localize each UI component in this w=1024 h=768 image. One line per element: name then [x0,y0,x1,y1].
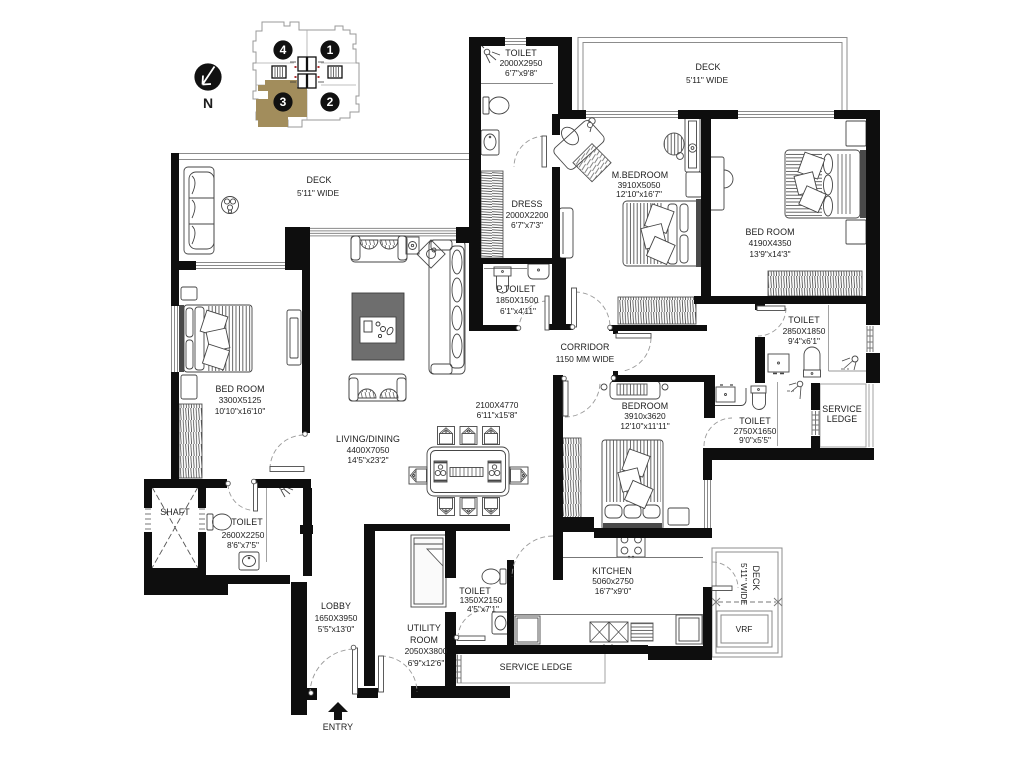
svg-text:1: 1 [327,43,334,57]
svg-text:16'7"x9'0": 16'7"x9'0" [595,586,632,596]
svg-text:M.BEDROOM: M.BEDROOM [612,170,669,180]
svg-text:1850X1500: 1850X1500 [496,295,539,305]
svg-text:14'5"x23'2": 14'5"x23'2" [347,455,388,465]
svg-text:6'9"x12'6": 6'9"x12'6" [408,658,445,668]
svg-text:DRESS: DRESS [511,199,542,209]
svg-text:SHAFT: SHAFT [160,507,190,517]
svg-text:1650X3950: 1650X3950 [315,613,358,623]
svg-text:10'10"x16'10": 10'10"x16'10" [215,406,266,416]
svg-text:5'5"x13'0": 5'5"x13'0" [318,624,355,634]
svg-text:2000X2200: 2000X2200 [506,210,549,220]
svg-text:6'1"x4'11": 6'1"x4'11" [500,306,536,316]
svg-text:DECK: DECK [306,175,331,185]
svg-text:2600X2250: 2600X2250 [222,530,265,540]
svg-text:4400X7050: 4400X7050 [347,445,390,455]
svg-text:6'7"x7'3": 6'7"x7'3" [511,220,543,230]
svg-text:8'6"x7'5": 8'6"x7'5" [227,540,259,550]
svg-text:4'5"x7'1": 4'5"x7'1" [467,604,499,614]
svg-text:3: 3 [280,95,287,109]
svg-text:DECK: DECK [695,62,720,72]
svg-text:6'7"x9'8": 6'7"x9'8" [505,68,537,78]
svg-text:ROOM: ROOM [410,635,438,645]
svg-text:4: 4 [280,43,287,57]
svg-text:LEDGE: LEDGE [827,414,858,424]
svg-text:5060x2750: 5060x2750 [592,576,634,586]
svg-text:ENTRY: ENTRY [323,722,353,732]
svg-text:2000X2950: 2000X2950 [500,58,543,68]
svg-text:2050X3800: 2050X3800 [405,646,448,656]
svg-text:12'10"x16'7": 12'10"x16'7" [616,189,662,199]
svg-text:SERVICE: SERVICE [822,404,862,414]
svg-text:3910x3620: 3910x3620 [624,411,666,421]
svg-text:N: N [203,95,213,111]
svg-text:12'10"x11'11": 12'10"x11'11" [620,421,669,431]
svg-text:UTILITY: UTILITY [407,623,441,633]
svg-text:VRF: VRF [736,624,753,634]
svg-text:6'11"x15'8": 6'11"x15'8" [477,410,518,420]
svg-text:LOBBY: LOBBY [321,601,351,611]
svg-text:4190X4350: 4190X4350 [749,238,792,248]
svg-text:BED ROOM: BED ROOM [745,227,794,237]
svg-text:2850X1850: 2850X1850 [783,326,826,336]
svg-text:5'11" WIDE: 5'11" WIDE [739,563,749,606]
svg-text:2100X4770: 2100X4770 [476,400,519,410]
svg-text:TOILET: TOILET [788,315,820,325]
svg-text:TOILET: TOILET [231,517,263,527]
svg-text:1150 MM WIDE: 1150 MM WIDE [556,354,615,364]
svg-text:5'11" WIDE: 5'11" WIDE [686,75,729,85]
svg-text:5'11" WIDE: 5'11" WIDE [297,188,340,198]
svg-text:2: 2 [327,95,334,109]
svg-text:SERVICE LEDGE: SERVICE LEDGE [500,662,573,672]
svg-text:9'4"x6'1": 9'4"x6'1" [788,336,820,346]
svg-text:9'0"x5'5": 9'0"x5'5" [739,435,771,445]
svg-text:KITCHEN: KITCHEN [592,566,632,576]
svg-text:TOILET: TOILET [739,416,771,426]
svg-text:BED ROOM: BED ROOM [215,384,264,394]
svg-text:DECK: DECK [751,565,761,590]
svg-text:TOILET: TOILET [505,48,537,58]
svg-text:P.TOILET: P.TOILET [497,284,536,294]
svg-text:LIVING/DINING: LIVING/DINING [336,434,400,444]
svg-text:3300X5125: 3300X5125 [219,395,262,405]
svg-text:13'9"x14'3": 13'9"x14'3" [749,249,790,259]
svg-text:CORRIDOR: CORRIDOR [560,342,609,352]
svg-text:BEDROOM: BEDROOM [622,401,669,411]
